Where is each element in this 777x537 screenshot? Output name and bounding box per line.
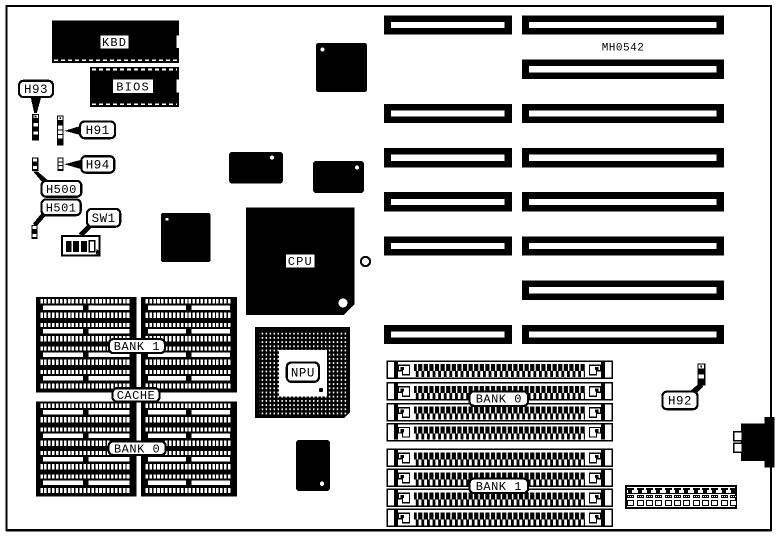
svg-text:H501: H501 [46,201,77,215]
svg-text:H92: H92 [668,395,692,409]
svg-text:SW1: SW1 [92,212,116,226]
svg-text:BANK 0: BANK 0 [476,393,522,407]
svg-text:MH0542: MH0542 [602,43,645,55]
svg-text:H91: H91 [86,124,110,138]
svg-text:H500: H500 [46,183,77,197]
svg-text:KBD: KBD [102,36,127,50]
svg-text:BANK 1: BANK 1 [476,480,522,494]
svg-text:BANK 1: BANK 1 [114,340,160,354]
svg-text:BIOS: BIOS [116,80,150,94]
svg-text:NPU: NPU [291,366,315,380]
svg-text:BANK 0: BANK 0 [114,442,160,456]
svg-text:H93: H93 [24,83,48,97]
svg-text:CPU: CPU [288,255,313,269]
svg-text:CACHE: CACHE [117,389,156,403]
svg-text:H94: H94 [86,159,110,173]
